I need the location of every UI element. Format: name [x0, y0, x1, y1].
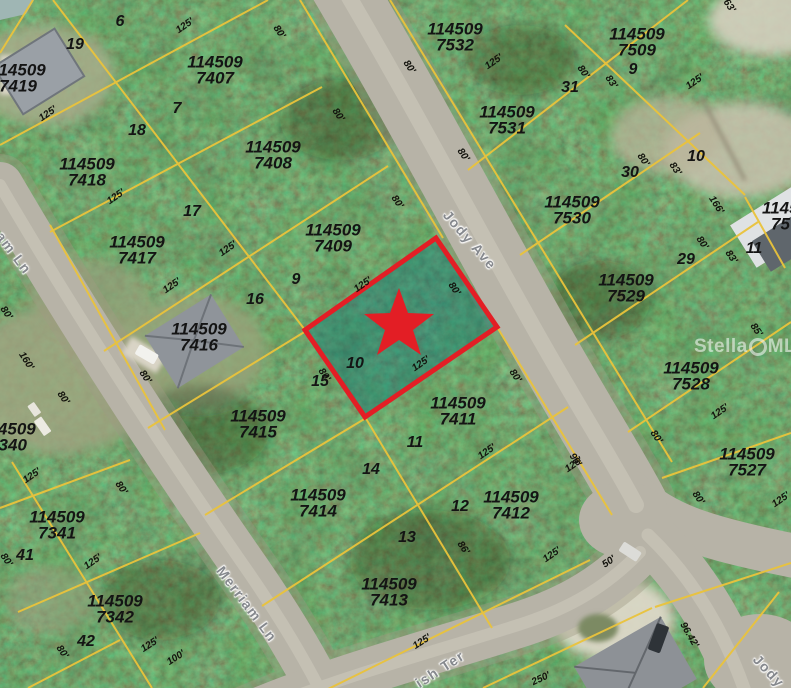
watermark-ring-icon: [749, 338, 767, 356]
watermark-prefix: Stella: [694, 336, 748, 358]
watermark-stellar-mls: StellaMLS: [694, 336, 791, 358]
map-graphics: [0, 0, 791, 688]
aerial-parcel-map: 114509 7419 114509 7407 114509 7532 1145…: [0, 0, 791, 688]
watermark-suffix: MLS: [768, 336, 791, 358]
